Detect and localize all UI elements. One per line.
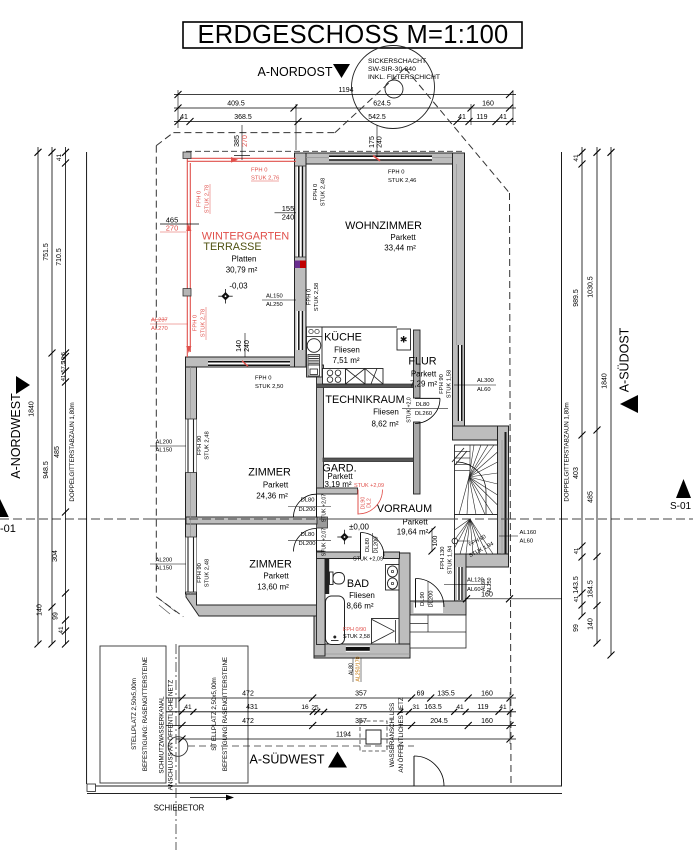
- svg-text:751.5: 751.5: [43, 243, 50, 261]
- svg-text:DOPPELGITTERSTABZAUN 1,80m: DOPPELGITTERSTABZAUN 1,80m: [564, 402, 571, 501]
- svg-text:-0,03: -0,03: [229, 282, 248, 291]
- svg-text:AL160: AL160: [520, 530, 537, 536]
- svg-text:485: 485: [54, 446, 61, 458]
- svg-text:989.5: 989.5: [573, 289, 580, 307]
- svg-text:8,66 m²: 8,66 m²: [346, 602, 373, 611]
- svg-text:31: 31: [412, 704, 420, 711]
- svg-text:STUK 2,48: STUK 2,48: [205, 431, 211, 459]
- svg-text:1194: 1194: [336, 732, 351, 739]
- svg-text:99: 99: [573, 624, 580, 632]
- svg-text:100: 100: [432, 535, 439, 546]
- svg-text:41: 41: [573, 154, 580, 162]
- svg-text:160: 160: [481, 592, 493, 599]
- svg-text:119: 119: [477, 704, 488, 711]
- svg-text:41: 41: [499, 114, 507, 121]
- svg-text:ST ELLPLATZ 2,50x5,00m: ST ELLPLATZ 2,50x5,00m: [211, 677, 218, 750]
- svg-text:1840: 1840: [602, 373, 609, 389]
- svg-text:57,5: 57,5: [61, 361, 67, 372]
- svg-text:DL90: DL90: [420, 592, 426, 606]
- svg-text:1840: 1840: [29, 401, 36, 417]
- svg-text:AL150: AL150: [156, 566, 173, 572]
- svg-text:485: 485: [588, 491, 595, 503]
- svg-text:STUK 2,78: STUK 2,78: [201, 309, 207, 337]
- svg-text:163.5: 163.5: [424, 704, 442, 711]
- svg-text:FPH 0: FPH 0: [313, 184, 319, 200]
- svg-text:160: 160: [481, 690, 493, 697]
- svg-text:ERDGESCHOSS M=1:100: ERDGESCHOSS M=1:100: [197, 21, 508, 49]
- svg-text:AL300: AL300: [477, 378, 494, 384]
- svg-text:DL2: DL2: [367, 498, 373, 508]
- svg-text:624.5: 624.5: [373, 100, 391, 107]
- svg-text:25: 25: [311, 705, 319, 712]
- svg-text:13,60 m²: 13,60 m²: [257, 583, 289, 592]
- svg-text:472: 472: [242, 690, 254, 697]
- svg-text:FPH 0: FPH 0: [307, 289, 313, 305]
- svg-text:AL60: AL60: [467, 587, 481, 593]
- svg-text:FPH 0: FPH 0: [197, 191, 203, 207]
- svg-text:Parkett: Parkett: [390, 233, 416, 242]
- svg-text:TERRASSE: TERRASSE: [203, 241, 261, 253]
- svg-text:-01: -01: [0, 523, 16, 535]
- svg-text:FPH 0: FPH 0: [251, 168, 267, 174]
- svg-text:AL150: AL150: [156, 448, 173, 454]
- svg-text:143.5: 143.5: [573, 576, 580, 594]
- svg-text:DL200: DL200: [429, 590, 435, 607]
- svg-text:948.5: 948.5: [43, 461, 50, 479]
- svg-text:SCHIEBETOR: SCHIEBETOR: [154, 804, 205, 813]
- svg-text:STUK 2,46: STUK 2,46: [388, 178, 416, 184]
- svg-text:41: 41: [456, 704, 464, 711]
- svg-text:240: 240: [282, 213, 295, 222]
- svg-text:710.5: 710.5: [56, 248, 63, 266]
- svg-text:DL260: DL260: [415, 411, 432, 417]
- svg-text:FPH 0: FPH 0: [388, 170, 404, 176]
- svg-text:30,79 m²: 30,79 m²: [226, 266, 258, 275]
- svg-text:AL250/170: AL250/170: [356, 656, 362, 681]
- svg-text:385: 385: [234, 135, 241, 147]
- svg-text:STUK +2,07: STUK +2,07: [321, 528, 327, 557]
- svg-text:AL270: AL270: [151, 326, 168, 332]
- svg-text:ANSCHLUSS AN ÖFFENTLICHE NETZ: ANSCHLUSS AN ÖFFENTLICHE NETZ: [168, 680, 175, 791]
- svg-text:DL80: DL80: [365, 538, 371, 552]
- svg-text:Parkett: Parkett: [263, 481, 289, 490]
- svg-text:140: 140: [588, 618, 595, 630]
- svg-text:41: 41: [458, 114, 466, 121]
- svg-text:270: 270: [242, 135, 249, 147]
- svg-text:41: 41: [56, 154, 63, 162]
- svg-text:33,44 m²: 33,44 m²: [384, 244, 416, 253]
- svg-text:FLUR: FLUR: [408, 356, 436, 368]
- svg-text:184.5: 184.5: [588, 580, 595, 598]
- svg-text:STUK 2,48: STUK 2,48: [321, 178, 327, 206]
- svg-text:DL200: DL200: [374, 536, 380, 553]
- svg-text:WOHNZIMMER: WOHNZIMMER: [345, 220, 422, 232]
- svg-text:304: 304: [52, 550, 59, 562]
- svg-text:357: 357: [355, 690, 367, 697]
- svg-text:ZIMMER: ZIMMER: [248, 467, 291, 479]
- svg-text:STUK +2,09: STUK +2,09: [354, 483, 384, 489]
- svg-text:AL200: AL200: [156, 558, 173, 564]
- svg-text:BEFESTIGUNG: RASENGITTERSTEINE: BEFESTIGUNG: RASENGITTERSTEINE: [222, 657, 229, 771]
- svg-text:368.5: 368.5: [234, 114, 252, 121]
- svg-text:41: 41: [184, 704, 192, 711]
- svg-text:DOPPELGITTERSTABZAUN 1,80m: DOPPELGITTERSTABZAUN 1,80m: [69, 402, 76, 501]
- svg-text:Parkett: Parkett: [263, 572, 289, 581]
- svg-text:DL80: DL80: [301, 532, 315, 538]
- svg-text:542.5: 542.5: [368, 114, 386, 121]
- svg-text:STUK +2,07: STUK +2,07: [321, 494, 327, 523]
- svg-text:FPH 0/90: FPH 0/90: [343, 627, 366, 633]
- svg-text:41: 41: [180, 114, 188, 121]
- svg-text:TECHNIKRAUM: TECHNIKRAUM: [325, 394, 404, 406]
- svg-text:431: 431: [246, 704, 258, 711]
- svg-text:204.5: 204.5: [430, 718, 448, 725]
- svg-text:DL200: DL200: [298, 507, 315, 513]
- svg-text:Fliesen: Fliesen: [373, 408, 399, 417]
- svg-text:STUK 2,48: STUK 2,48: [205, 559, 211, 587]
- svg-text:FPH 90: FPH 90: [197, 563, 203, 583]
- svg-text:409.5: 409.5: [227, 100, 245, 107]
- svg-text:Parkett: Parkett: [411, 370, 437, 379]
- svg-text:24,36 m²: 24,36 m²: [256, 492, 288, 501]
- svg-text:403: 403: [573, 467, 580, 479]
- svg-text:160: 160: [481, 718, 493, 725]
- svg-text:41: 41: [61, 375, 67, 381]
- svg-text:SCHMUTZWASSERKANAL: SCHMUTZWASSERKANAL: [159, 696, 166, 774]
- svg-text:KÜCHE: KÜCHE: [324, 332, 362, 344]
- svg-text:AN ÖFFENTLICHES NETZ: AN ÖFFENTLICHES NETZ: [398, 697, 405, 773]
- svg-text:275: 275: [355, 704, 367, 711]
- svg-text:✱: ✱: [400, 335, 408, 345]
- svg-text:A-NORDWEST: A-NORDWEST: [9, 393, 23, 479]
- svg-text:FPH 90: FPH 90: [197, 436, 203, 456]
- svg-text:7,51 m²: 7,51 m²: [332, 356, 359, 365]
- svg-text:472: 472: [242, 718, 254, 725]
- svg-text:140: 140: [37, 604, 44, 616]
- svg-text:BAD: BAD: [347, 578, 369, 590]
- svg-text:STUK 2,50: STUK 2,50: [255, 384, 283, 390]
- svg-text:16: 16: [301, 704, 309, 711]
- svg-text:BEFESTIGUNG: RASENGITTERSTEINE: BEFESTIGUNG: RASENGITTERSTEINE: [142, 657, 149, 771]
- svg-text:240: 240: [377, 136, 384, 148]
- svg-text:8,62 m²: 8,62 m²: [371, 420, 398, 429]
- svg-text:DL200: DL200: [298, 541, 315, 547]
- svg-text:STUK +2,0: STUK +2,0: [406, 397, 412, 423]
- svg-text:A-NORDOST: A-NORDOST: [258, 65, 333, 79]
- svg-text:AL237: AL237: [151, 318, 168, 324]
- svg-text:3,19 m²: 3,19 m²: [324, 480, 351, 489]
- svg-text:69: 69: [417, 690, 425, 697]
- svg-text:A-SÜDWEST: A-SÜDWEST: [250, 753, 325, 767]
- svg-text:1194: 1194: [338, 87, 353, 94]
- svg-text:WASSERANSCHLUSS: WASSERANSCHLUSS: [389, 703, 396, 767]
- svg-text:AL80: AL80: [349, 663, 355, 675]
- svg-text:AL250: AL250: [266, 302, 283, 308]
- svg-text:FPH 130: FPH 130: [440, 547, 446, 570]
- svg-text:INKL. FILTERSCHICHT: INKL. FILTERSCHICHT: [368, 74, 440, 81]
- svg-text:41: 41: [574, 548, 580, 554]
- svg-text:7,29 m²: 7,29 m²: [410, 380, 437, 389]
- svg-text:STUK 2,76: STUK 2,76: [251, 176, 279, 182]
- svg-text:FPH 0: FPH 0: [255, 376, 271, 382]
- svg-text:STUK 2,78: STUK 2,78: [205, 185, 211, 213]
- svg-text:AL150: AL150: [266, 294, 283, 300]
- svg-text:175: 175: [369, 136, 376, 148]
- svg-text:160: 160: [482, 100, 494, 107]
- svg-text:AL60: AL60: [477, 387, 491, 393]
- svg-text:41: 41: [574, 596, 580, 602]
- svg-text:FPH 0: FPH 0: [193, 315, 199, 331]
- svg-text:1030.5: 1030.5: [588, 276, 595, 298]
- svg-text:41: 41: [499, 704, 507, 711]
- svg-text:119: 119: [476, 114, 487, 121]
- svg-text:VORRAUM: VORRAUM: [377, 503, 432, 515]
- svg-text:DL80: DL80: [416, 402, 430, 408]
- svg-text:270: 270: [166, 224, 179, 233]
- svg-text:Platten: Platten: [232, 255, 257, 264]
- svg-text:STUK 2,58: STUK 2,58: [314, 283, 320, 311]
- svg-text:140: 140: [236, 340, 243, 352]
- svg-text:STUK 2,58: STUK 2,58: [343, 634, 370, 640]
- svg-text:STUK 1,94: STUK 1,94: [448, 545, 454, 574]
- svg-text:STELLPLATZ 2,50x5,00m: STELLPLATZ 2,50x5,00m: [131, 678, 138, 750]
- svg-text:AL200: AL200: [156, 440, 173, 446]
- svg-text:SICKERSCHACHT: SICKERSCHACHT: [368, 58, 426, 65]
- svg-text:AL60: AL60: [520, 539, 534, 545]
- svg-text:Fliesen: Fliesen: [334, 346, 360, 355]
- svg-text:DL80: DL80: [301, 498, 315, 504]
- svg-text:41: 41: [58, 626, 65, 634]
- svg-text:ZIMMER: ZIMMER: [249, 559, 292, 571]
- svg-text:AL250: AL250: [487, 577, 493, 592]
- svg-text:FPH 90: FPH 90: [439, 374, 445, 394]
- svg-text:99: 99: [53, 612, 60, 620]
- svg-text:19,64 m²: 19,64 m²: [397, 528, 429, 537]
- svg-text:A-SÜDOST: A-SÜDOST: [618, 327, 632, 392]
- svg-text:S-01: S-01: [670, 501, 692, 512]
- svg-text:Fliesen: Fliesen: [349, 591, 375, 600]
- svg-text:±0,00: ±0,00: [349, 523, 370, 532]
- svg-text:STUK +2,09: STUK +2,09: [353, 557, 383, 563]
- svg-text:STUK 1,58: STUK 1,58: [447, 370, 453, 398]
- svg-text:135.5: 135.5: [437, 690, 455, 697]
